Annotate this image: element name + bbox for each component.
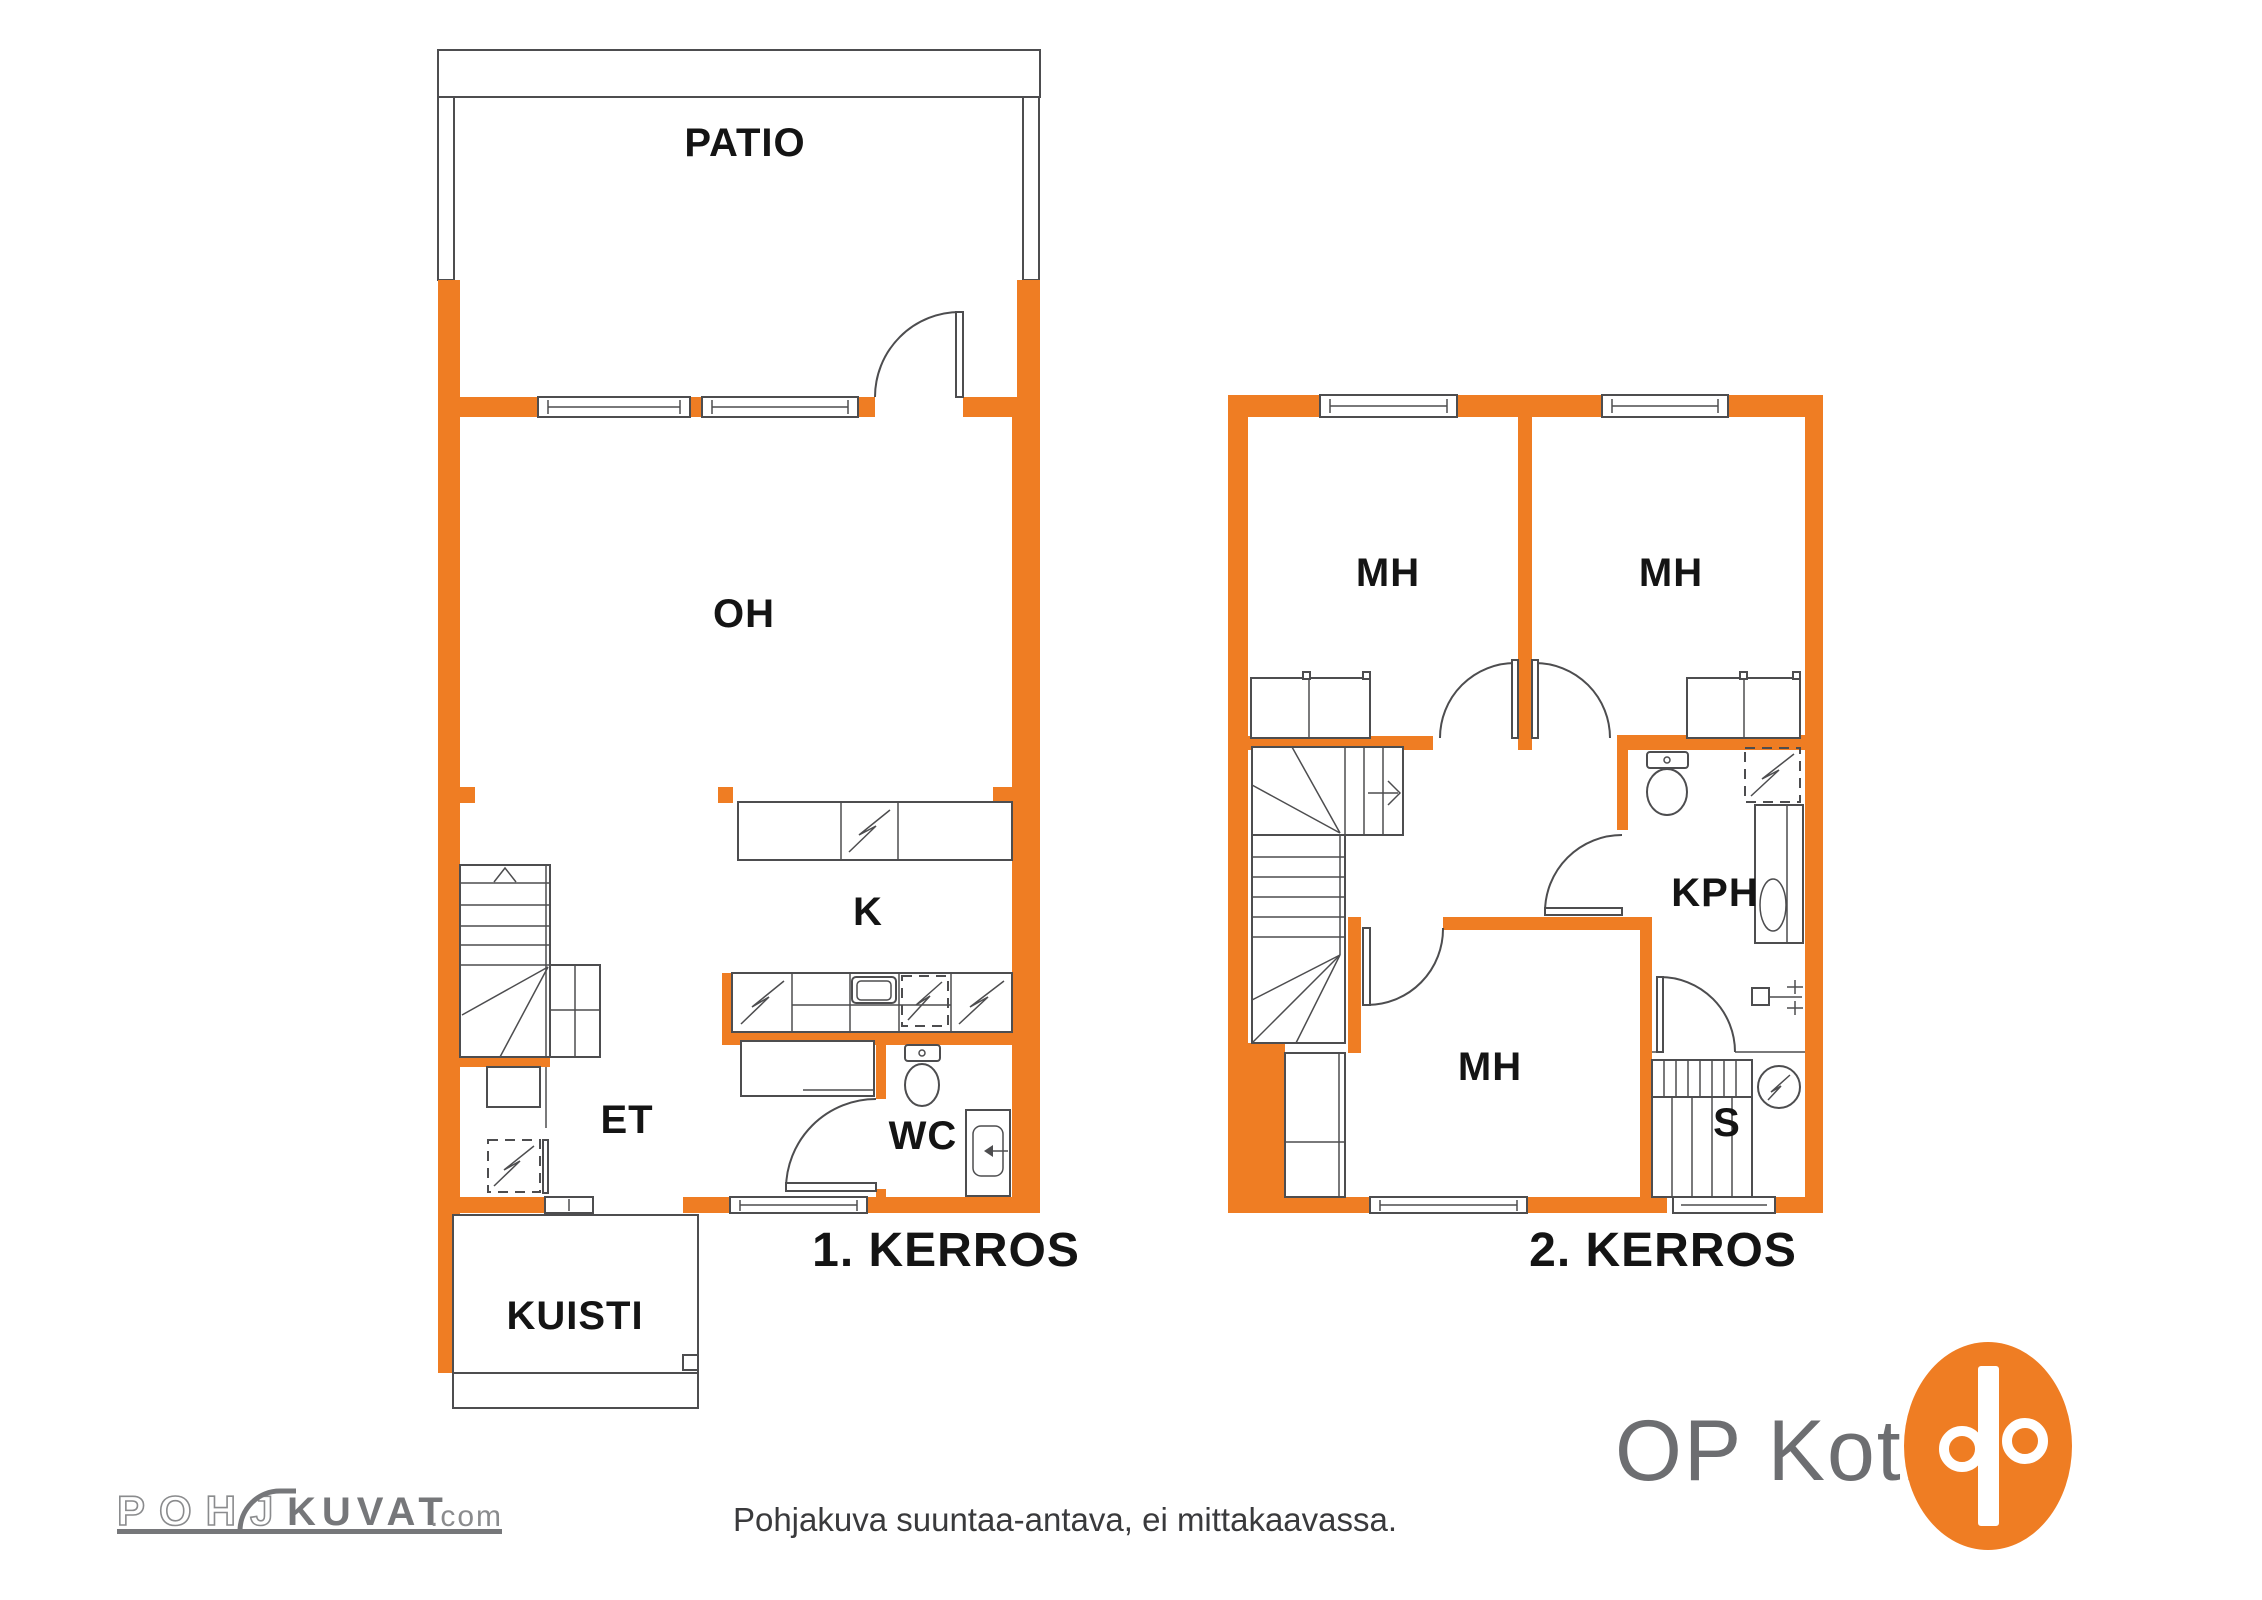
disclaimer-text: Pohjakuva suuntaa-antava, ei mittakaavas… bbox=[733, 1501, 1397, 1538]
patio-door bbox=[875, 312, 963, 397]
watermark-baseline bbox=[117, 1529, 502, 1534]
room-label-kitchen: K bbox=[853, 890, 883, 934]
sauna-stove-icon bbox=[1758, 1066, 1800, 1108]
room-label-bathroom: KPH bbox=[1671, 871, 1758, 915]
floorplan-page: PATIO OH K ET WC KUISTI 1. KERROS bbox=[0, 0, 2262, 1600]
window bbox=[1320, 395, 1457, 417]
window bbox=[1370, 1197, 1527, 1213]
floor2-title: 2. KERROS bbox=[1529, 1224, 1797, 1277]
room-label-patio: PATIO bbox=[684, 121, 805, 165]
bathroom-door bbox=[1545, 835, 1622, 915]
window bbox=[1673, 1197, 1775, 1213]
room-label-entrance: ET bbox=[600, 1098, 653, 1142]
wc-door bbox=[786, 1099, 876, 1191]
closet-under-stairs bbox=[1285, 1053, 1345, 1197]
washbasin-icon bbox=[966, 1110, 1010, 1196]
kitchen-upper-counter bbox=[738, 802, 1012, 860]
sauna-door bbox=[1657, 977, 1735, 1052]
window bbox=[702, 397, 858, 417]
floor2-plan: MH MH MH KPH S 2. KERROS bbox=[1228, 395, 1823, 1277]
room-label-bedroom-right: MH bbox=[1639, 551, 1703, 595]
pohjakuvat-watermark: POHJ KUVAT .com bbox=[117, 1487, 503, 1534]
window bbox=[1602, 395, 1728, 417]
room-label-bedroom-lower: MH bbox=[1458, 1045, 1522, 1089]
footer: POHJ KUVAT .com Pohjakuva suuntaa-antava… bbox=[117, 1342, 2072, 1550]
hall-wardrobe bbox=[741, 1041, 874, 1096]
closet bbox=[487, 1067, 540, 1107]
washer-icon bbox=[1751, 754, 1794, 796]
vanity-icon bbox=[1755, 805, 1803, 943]
wardrobe bbox=[1251, 672, 1370, 738]
floor1-plan: PATIO OH K ET WC KUISTI 1. KERROS bbox=[438, 50, 1080, 1408]
window bbox=[545, 1197, 593, 1213]
bedroom-lower-door bbox=[1363, 928, 1443, 1005]
shower-icon bbox=[1752, 980, 1803, 1015]
wardrobe bbox=[1687, 672, 1800, 738]
room-label-living: OH bbox=[713, 592, 775, 636]
room-label-bedroom-left: MH bbox=[1356, 551, 1420, 595]
watermark-solid-text: KUVAT bbox=[287, 1490, 449, 1534]
op-koti-brand: OP Koti bbox=[1615, 1342, 2072, 1550]
window bbox=[538, 397, 690, 417]
toilet-icon bbox=[905, 1045, 940, 1106]
kitchen-lower-counter bbox=[732, 973, 1012, 1032]
watermark-suffix-text: .com bbox=[430, 1500, 503, 1533]
floor2-doors bbox=[1363, 660, 1735, 1052]
window bbox=[730, 1197, 867, 1213]
staircase-floor1 bbox=[460, 865, 600, 1057]
brand-text: OP Koti bbox=[1615, 1403, 1924, 1499]
room-label-sauna: S bbox=[1713, 1101, 1741, 1145]
sauna-bench-upper bbox=[1652, 1060, 1752, 1097]
staircase-floor2 bbox=[1252, 747, 1403, 1043]
bedroom-right-door bbox=[1532, 660, 1610, 738]
bedroom-left-door bbox=[1440, 660, 1518, 738]
appliance-icon bbox=[494, 1146, 534, 1186]
patio-structure bbox=[438, 50, 1040, 280]
room-label-porch: KUISTI bbox=[506, 1294, 643, 1338]
room-label-wc: WC bbox=[889, 1114, 958, 1158]
toilet-icon bbox=[1647, 752, 1688, 815]
floorplan-drawing: PATIO OH K ET WC KUISTI 1. KERROS bbox=[0, 0, 2262, 1600]
floor1-title: 1. KERROS bbox=[812, 1224, 1080, 1277]
op-logo-icon bbox=[1904, 1342, 2072, 1550]
sink-icon bbox=[852, 977, 896, 1003]
